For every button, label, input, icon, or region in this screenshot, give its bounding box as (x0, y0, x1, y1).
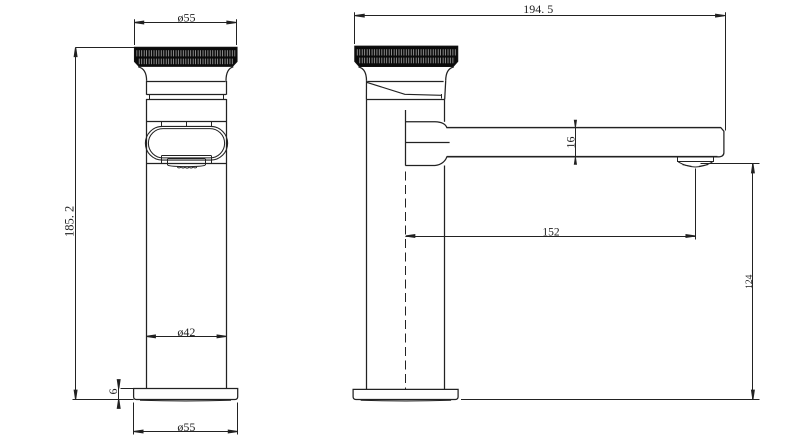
svg-text:185. 2: 185. 2 (62, 206, 76, 237)
svg-text:ø55: ø55 (178, 10, 196, 24)
svg-text:16: 16 (563, 137, 577, 149)
svg-text:152: 152 (542, 227, 560, 239)
svg-text:194. 5: 194. 5 (523, 2, 553, 16)
svg-text:ø55: ø55 (177, 420, 195, 434)
svg-text:ø42: ø42 (177, 325, 195, 339)
svg-text:124: 124 (745, 274, 755, 289)
svg-text:6: 6 (106, 389, 120, 395)
